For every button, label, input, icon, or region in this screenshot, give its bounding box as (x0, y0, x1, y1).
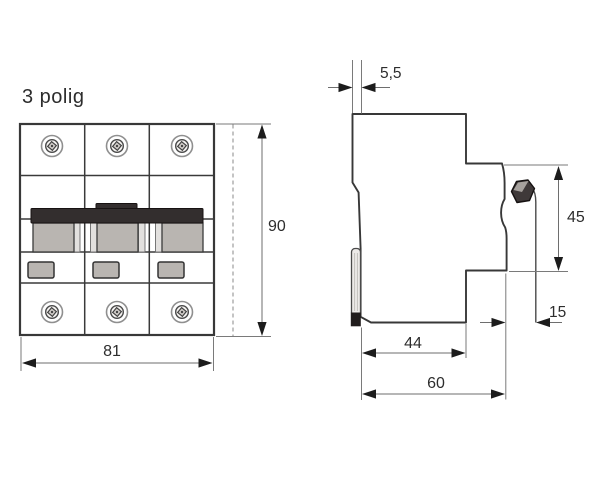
front-depth-value: 15 (549, 304, 566, 321)
toggle-base (33, 223, 74, 252)
side-view: 5,5 45 15 44 (328, 60, 585, 400)
toggle-bases (33, 223, 203, 252)
front-width-value: 81 (103, 343, 121, 360)
din-rail-clip (352, 249, 361, 317)
technical-drawing-page: 3 polig (0, 0, 600, 480)
dimension-front-height: 90 (216, 124, 286, 337)
toggle-lever-knob (512, 180, 535, 203)
dimension-front-depth: 15 (480, 304, 566, 327)
mounting-foot (351, 313, 361, 327)
rail-clip-depth-value: 5,5 (380, 65, 402, 82)
side-body-outline (353, 114, 507, 323)
terminal-screw-icon (172, 302, 193, 323)
terminal-screw-icon (42, 136, 63, 157)
terminal-screw-icon (42, 302, 63, 323)
front-view: 3 polig (20, 86, 286, 371)
label-window (93, 262, 119, 278)
terminal-screw-icon (107, 302, 128, 323)
dimension-drawing-svg: 3 polig (0, 0, 600, 480)
terminal-screw-icon (107, 136, 128, 157)
dimension-rail-clip-depth: 5,5 (328, 60, 402, 114)
total-depth-value: 60 (427, 375, 445, 392)
toggle-base (162, 223, 203, 252)
pole-count-label: 3 polig (22, 86, 84, 108)
dimension-base-depth: 44 (362, 324, 467, 400)
terminal-screw-icon (172, 136, 193, 157)
handle-height-value: 45 (567, 209, 585, 226)
label-window (28, 262, 54, 278)
dimension-front-width: 81 (21, 337, 214, 371)
toggle-base (97, 223, 138, 252)
lever-collar-line (521, 182, 536, 323)
base-depth-value: 44 (404, 335, 422, 352)
label-windows (28, 262, 184, 278)
label-window (158, 262, 184, 278)
front-height-value: 90 (268, 218, 286, 235)
